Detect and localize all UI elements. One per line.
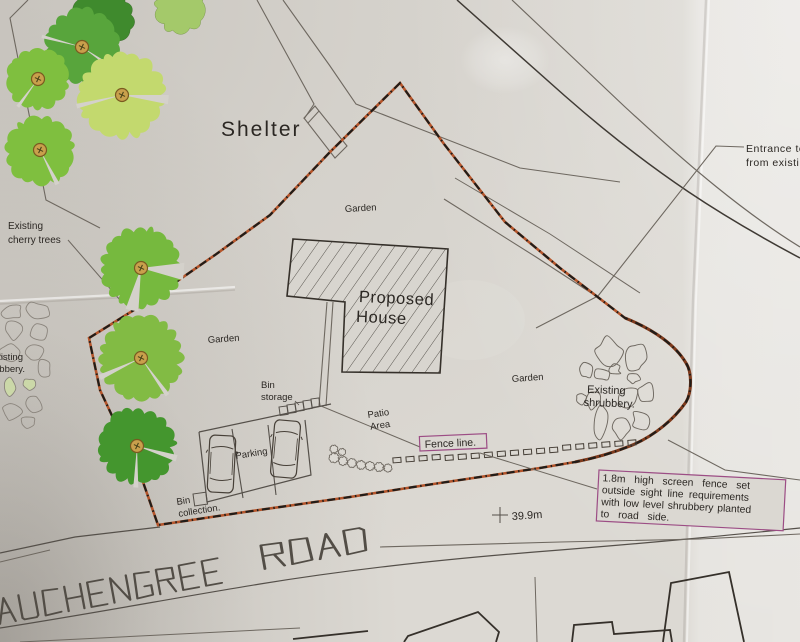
svg-text:Fence line.: Fence line. — [424, 437, 476, 451]
svg-text:39.9m: 39.9m — [511, 509, 542, 523]
svg-text:Garden: Garden — [345, 202, 377, 215]
svg-text:Bin: Bin — [261, 380, 275, 391]
svg-text:Garden: Garden — [207, 333, 239, 346]
svg-text:Existing: Existing — [587, 384, 626, 397]
svg-text:Proposed: Proposed — [359, 288, 435, 309]
svg-text:Existing: Existing — [0, 352, 23, 363]
svg-text:Entrance to: Entrance to — [746, 143, 800, 155]
svg-text:House: House — [356, 308, 407, 328]
svg-text:from existing: from existing — [746, 157, 800, 169]
svg-text:Shelter: Shelter — [221, 118, 302, 141]
svg-text:Existing: Existing — [8, 221, 43, 232]
svg-text:Bin: Bin — [176, 495, 191, 508]
svg-text:shrubbery.: shrubbery. — [0, 364, 25, 375]
svg-text:shrubbery.: shrubbery. — [583, 397, 635, 411]
svg-text:Garden: Garden — [511, 372, 543, 385]
svg-text:storage: storage — [261, 392, 293, 403]
svg-text:cherry trees: cherry trees — [8, 235, 61, 246]
